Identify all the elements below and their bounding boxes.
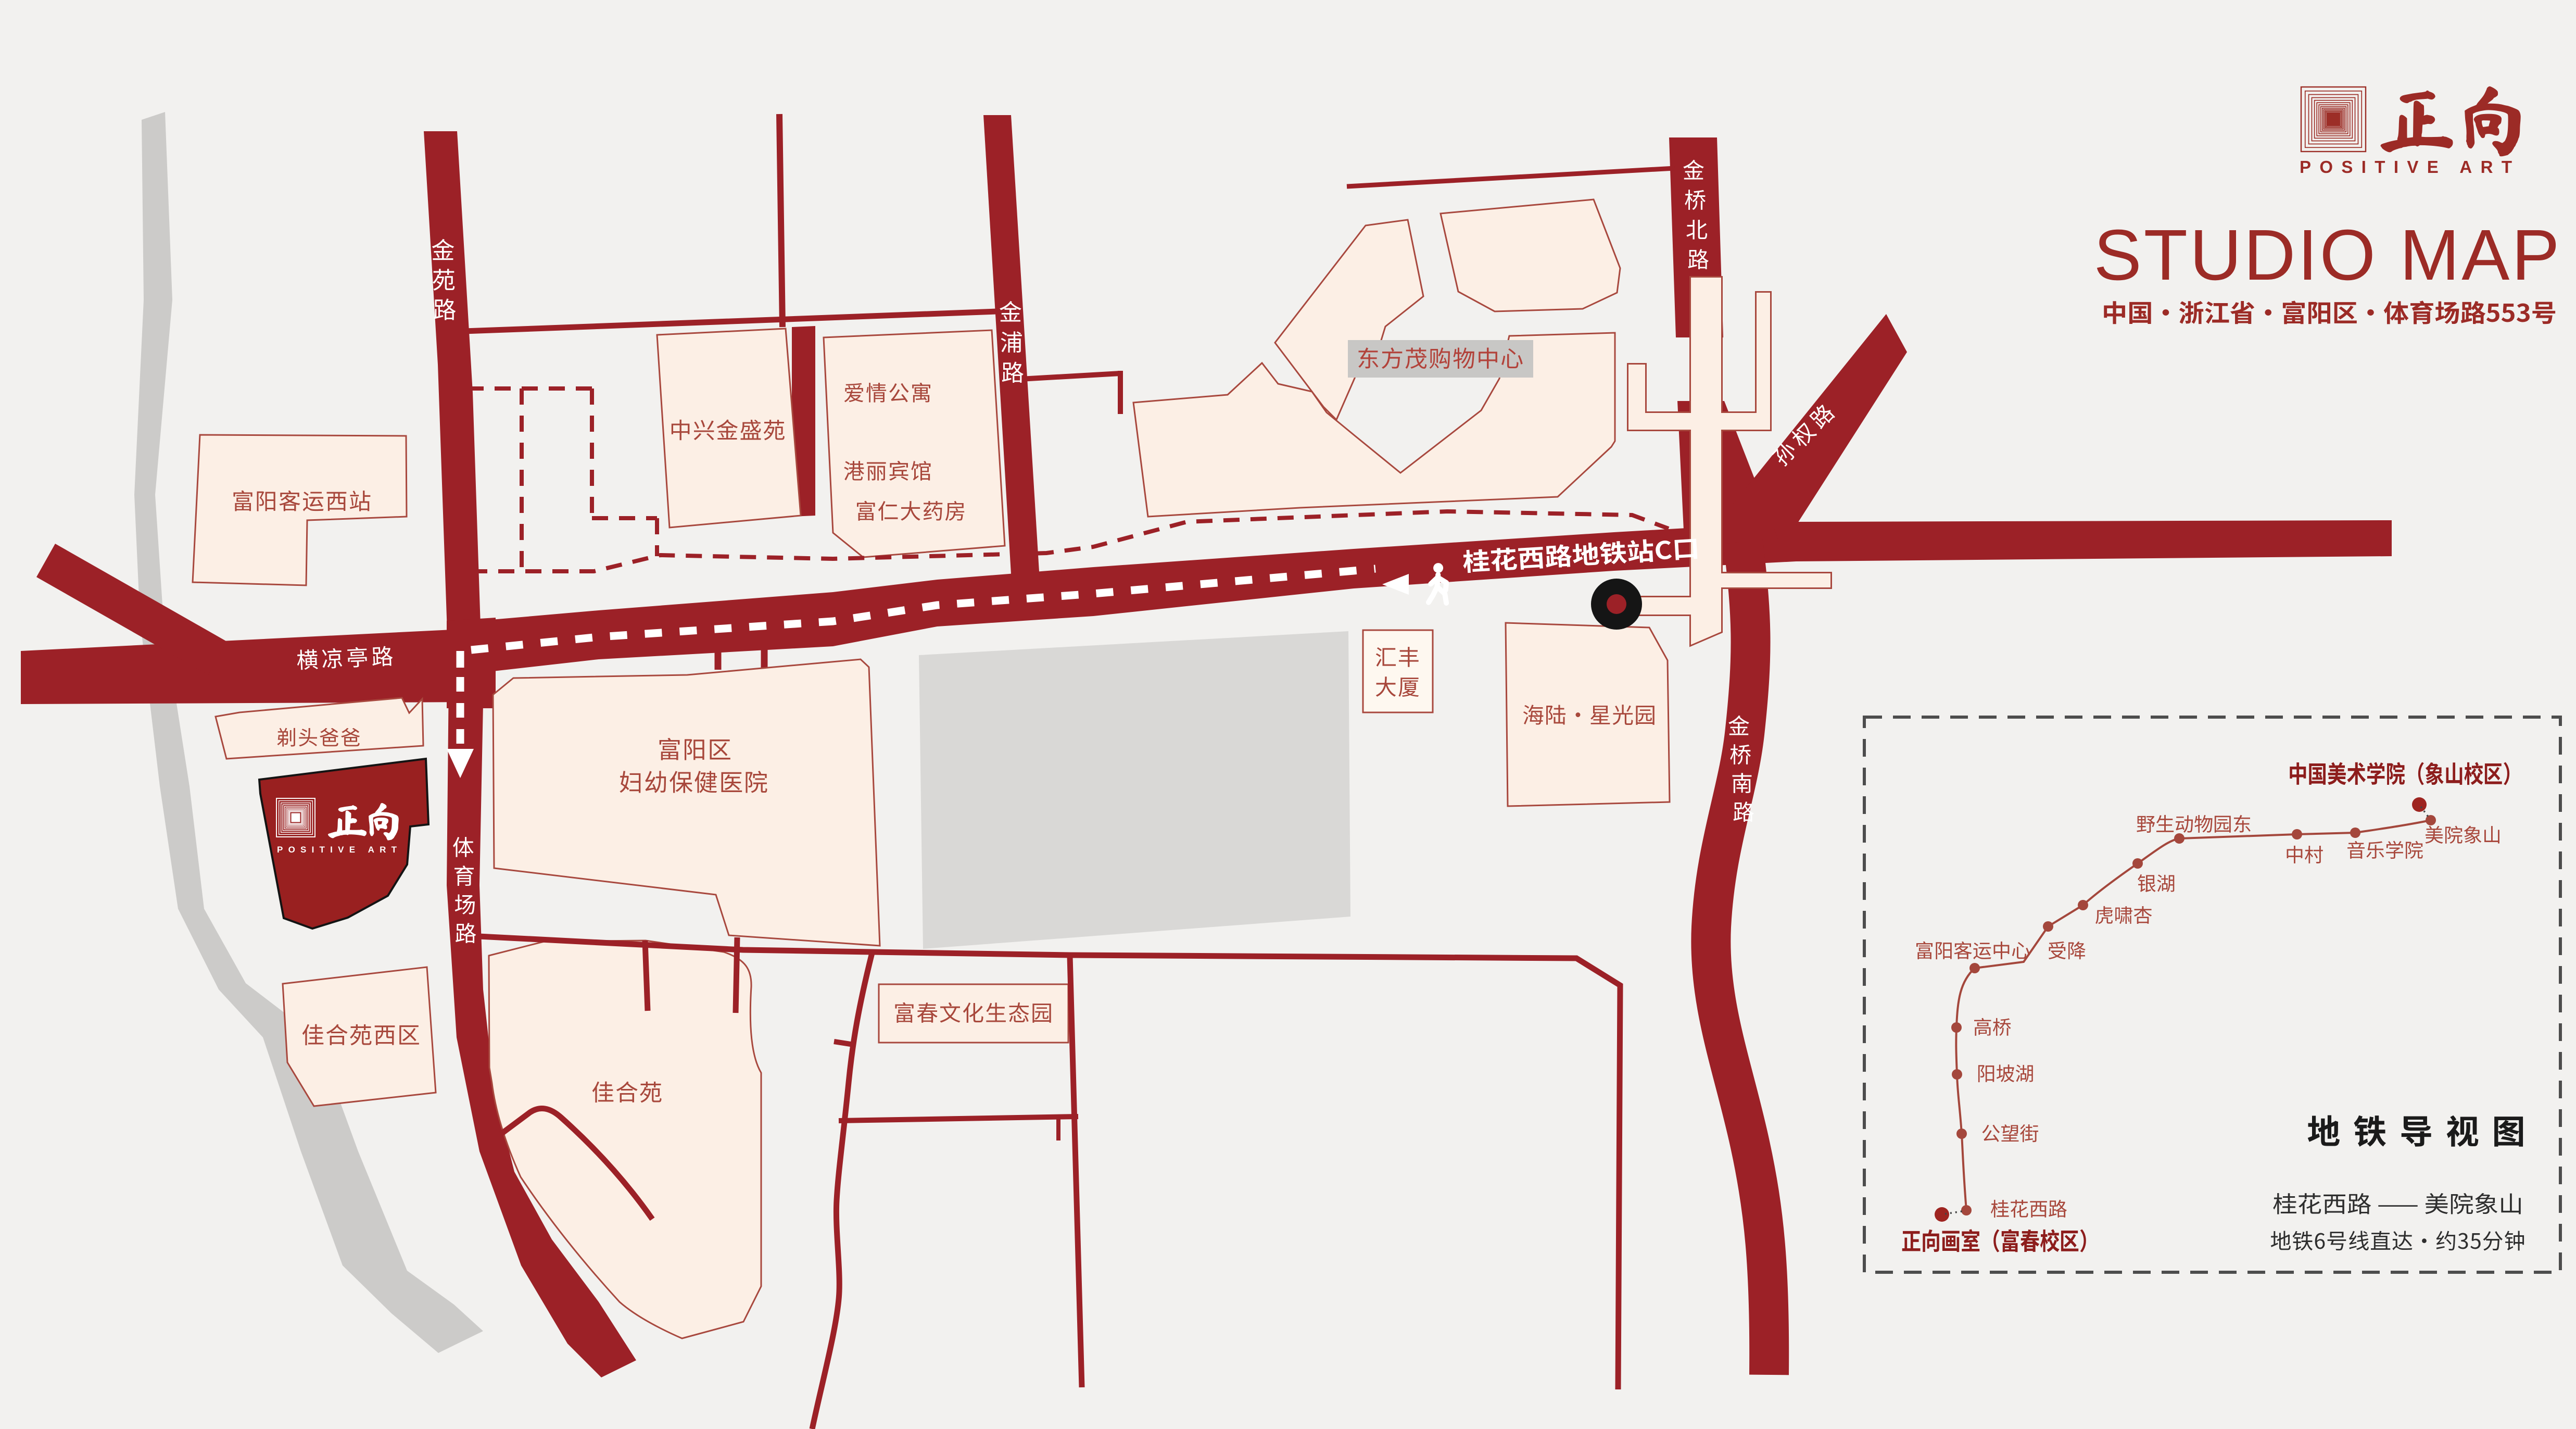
svg-text:美院象山: 美院象山: [2425, 820, 2502, 848]
svg-text:向: 向: [363, 800, 405, 842]
svg-text:金: 金: [431, 232, 454, 266]
svg-text:金: 金: [1728, 709, 1750, 741]
svg-text:路: 路: [433, 291, 456, 325]
svg-text:佳合苑西区: 佳合苑西区: [301, 1017, 421, 1050]
svg-text:金: 金: [1683, 154, 1704, 185]
svg-text:音乐学院: 音乐学院: [2346, 835, 2423, 863]
svg-text:地铁导视图: 地铁导视图: [2307, 1106, 2526, 1154]
svg-text:桥: 桥: [1729, 738, 1751, 770]
svg-text:高桥: 高桥: [1973, 1012, 2012, 1040]
svg-text:银湖: 银湖: [2137, 868, 2176, 896]
svg-text:大厦: 大厦: [1375, 670, 1421, 702]
svg-text:金: 金: [999, 294, 1022, 327]
svg-text:南: 南: [1731, 767, 1753, 798]
svg-text:公望街: 公望街: [1981, 1118, 2039, 1146]
svg-text:海陆·星光园: 海陆·星光园: [1522, 698, 1657, 730]
svg-text:中国美术学院（象山校区）: 中国美术学院（象山校区）: [2288, 756, 2522, 790]
svg-text:虎啸杏: 虎啸杏: [2095, 900, 2153, 928]
svg-text:富阳区: 富阳区: [658, 731, 733, 766]
svg-text:育: 育: [453, 859, 475, 891]
svg-text:浦: 浦: [1000, 324, 1023, 357]
svg-text:正向画室（富春校区）: 正向画室（富春校区）: [1901, 1223, 2099, 1257]
svg-text:正: 正: [2378, 80, 2456, 158]
svg-text:地铁6号线直达·约35分钟: 地铁6号线直达·约35分钟: [2270, 1224, 2526, 1255]
svg-text:剃头爸爸: 剃头爸爸: [276, 722, 362, 751]
svg-text:桂花西路: 桂花西路: [1990, 1194, 2067, 1222]
svg-text:富仁大药房: 富仁大药房: [855, 494, 967, 525]
svg-text:横凉亭路: 横凉亭路: [296, 639, 397, 675]
svg-text:富阳客运中心: 富阳客运中心: [1915, 935, 2030, 963]
svg-text:中兴金盛苑: 中兴金盛苑: [670, 413, 787, 445]
svg-text:阳坡湖: 阳坡湖: [1977, 1058, 2035, 1086]
svg-text:中国·浙江省·富阳区·体育场路553号: 中国·浙江省·富阳区·体育场路553号: [2102, 293, 2557, 329]
svg-text:受降: 受降: [2048, 935, 2086, 963]
svg-text:中村: 中村: [2285, 839, 2324, 868]
svg-text:妇幼保健医院: 妇幼保健医院: [619, 764, 769, 798]
svg-text:汇丰: 汇丰: [1375, 641, 1421, 672]
svg-text:富阳客运西站: 富阳客运西站: [232, 484, 372, 516]
svg-text:东方茂购物中心: 东方茂购物中心: [1357, 340, 1524, 373]
svg-text:体: 体: [452, 831, 474, 862]
svg-text:港丽宾馆: 港丽宾馆: [843, 454, 933, 485]
svg-text:爱情公寓: 爱情公寓: [843, 375, 933, 407]
svg-text:正: 正: [326, 800, 368, 842]
svg-text:富春文化生态园: 富春文化生态园: [893, 996, 1054, 1028]
svg-text:路: 路: [454, 917, 476, 948]
svg-text:路: 路: [1733, 795, 1754, 827]
svg-text:路: 路: [1687, 243, 1709, 274]
svg-text:佳合苑: 佳合苑: [591, 1074, 663, 1107]
svg-text:野生动物园东: 野生动物园东: [2136, 809, 2252, 837]
svg-text:路: 路: [1001, 354, 1024, 387]
svg-text:STUDIO MAP: STUDIO MAP: [2094, 215, 2562, 295]
svg-text:场: 场: [454, 888, 476, 920]
svg-text:向: 向: [2454, 80, 2532, 158]
svg-text:桥: 桥: [1684, 183, 1706, 215]
svg-text:北: 北: [1686, 213, 1708, 245]
svg-text:桂花西路 —— 美院象山: 桂花西路 —— 美院象山: [2272, 1186, 2523, 1219]
svg-text:苑: 苑: [432, 261, 456, 295]
